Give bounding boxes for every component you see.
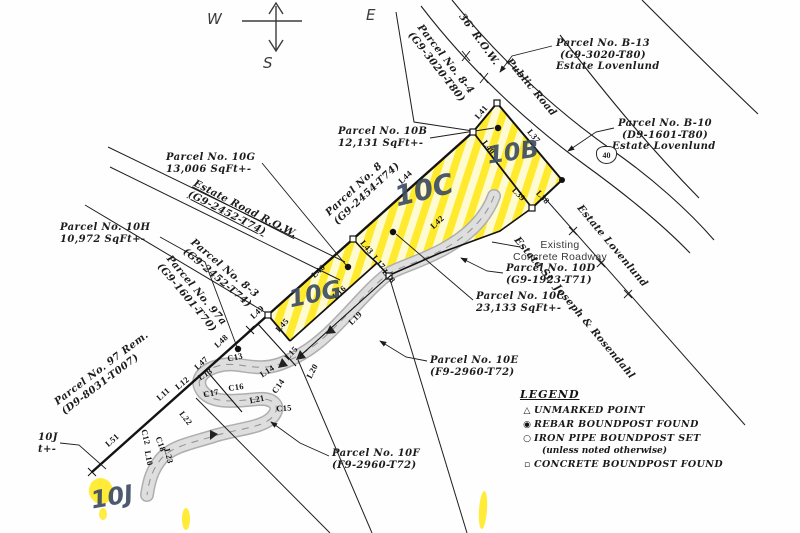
label-parcel-10h: Parcel No. 10H 10,972 SqFt+-	[60, 222, 150, 245]
line-label-C16: C16	[228, 381, 245, 393]
legend-item-concrete-boundpost: ▫ CONCRETE BOUNDPOST FOUND	[520, 458, 750, 471]
rebar-boundpost-icon: ◉	[520, 420, 534, 430]
compass-south-label: S	[263, 54, 273, 72]
line-label-C15: C15	[276, 402, 292, 413]
compass-rose	[242, 3, 302, 51]
label-parcel-10c: Parcel No. 10C 23,133 SqFt+-	[476, 291, 565, 314]
survey-plat-map: W E S Parcel No. 10B 12,131 SqFt+- Parce…	[0, 0, 800, 533]
legend-subnote: (unless noted otherwise)	[542, 446, 750, 457]
label-parcel-b13: Parcel No. B-13 (G9-3020-T80) Estate Lov…	[556, 38, 660, 73]
compass-west-label: W	[207, 10, 222, 28]
legend-item-unmarked-point: △ UNMARKED POINT	[520, 404, 750, 417]
legend: LEGEND △ UNMARKED POINT ◉ REBAR BOUNDPOS…	[520, 388, 750, 472]
label-parcel-10g: Parcel No. 10G 13,006 SqFt+-	[166, 152, 255, 175]
label-parcel-10j: 10J t+-	[38, 432, 58, 455]
label-parcel-10f: Parcel No. 10F (F9-2960-T72)	[332, 448, 420, 471]
label-parcel-10b: Parcel No. 10B 12,131 SqFt+-	[338, 126, 427, 149]
label-parcel-10e: Parcel No. 10E (F9-2960-T72)	[430, 355, 518, 378]
legend-item-iron-pipe: ○ IRON PIPE BOUNDPOST SET	[520, 432, 750, 445]
label-parcel-b10: Parcel No. B-10 (D9-1601-T80) Estate Lov…	[618, 118, 716, 153]
compass-east-label: E	[366, 6, 375, 24]
concrete-boundpost-icon: ▫	[520, 460, 534, 470]
legend-item-rebar-boundpost: ◉ REBAR BOUNDPOST FOUND	[520, 418, 750, 431]
iron-pipe-icon: ○	[520, 434, 534, 444]
legend-title: LEGEND	[520, 388, 750, 401]
unmarked-point-icon: △	[520, 406, 534, 416]
